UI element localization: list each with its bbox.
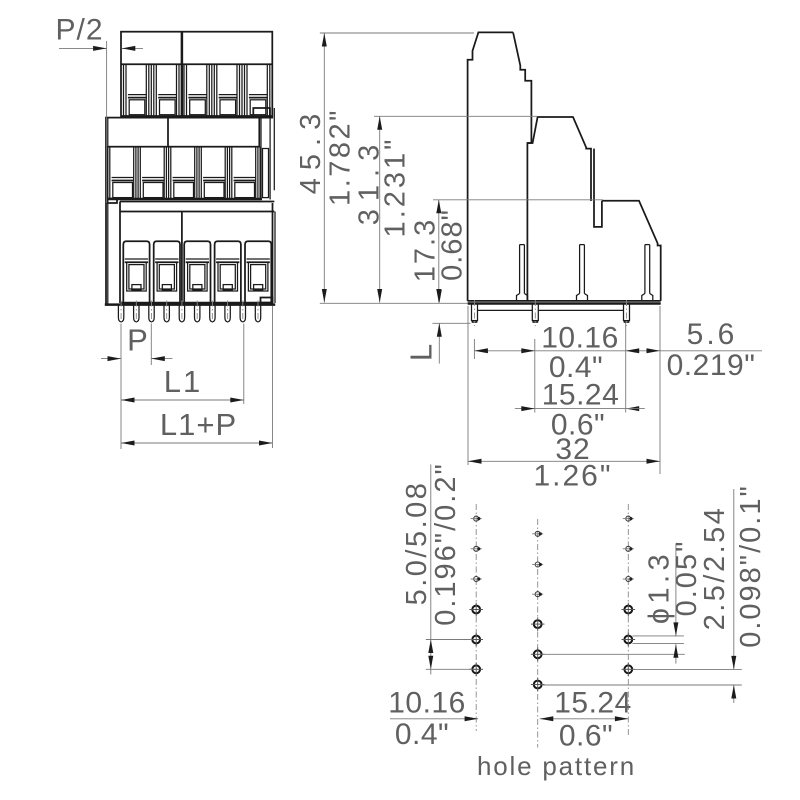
svg-text:45.3: 45.3 xyxy=(295,106,327,194)
svg-text:5.0/5.08: 5.0/5.08 xyxy=(401,481,433,606)
svg-text:10.16: 10.16 xyxy=(541,322,619,355)
svg-text:P/2: P/2 xyxy=(55,14,103,47)
svg-text:P: P xyxy=(127,323,149,358)
svg-text:L1: L1 xyxy=(164,364,202,399)
svg-text:0.219": 0.219" xyxy=(667,349,756,382)
svg-text:0.68": 0.68" xyxy=(437,209,469,281)
svg-text:5.6: 5.6 xyxy=(687,318,738,351)
svg-text:0.098"/0.1": 0.098"/0.1" xyxy=(735,484,767,648)
svg-text:1.231": 1.231" xyxy=(380,137,412,238)
svg-text:hole pattern: hole pattern xyxy=(477,751,636,781)
svg-text:1.782": 1.782" xyxy=(325,108,357,206)
svg-text:15.24: 15.24 xyxy=(542,379,620,412)
svg-text:0.196"/0.2": 0.196"/0.2" xyxy=(430,462,462,626)
svg-text:0.4": 0.4" xyxy=(395,718,449,751)
svg-text:1.26": 1.26" xyxy=(533,460,612,493)
svg-text:L: L xyxy=(404,343,439,361)
svg-text:L1+P: L1+P xyxy=(160,407,237,442)
svg-text:15.24: 15.24 xyxy=(554,687,632,720)
svg-text:10.16: 10.16 xyxy=(388,687,466,720)
svg-text:0.6": 0.6" xyxy=(559,720,613,753)
svg-text:2.5/2.54: 2.5/2.54 xyxy=(699,506,731,631)
